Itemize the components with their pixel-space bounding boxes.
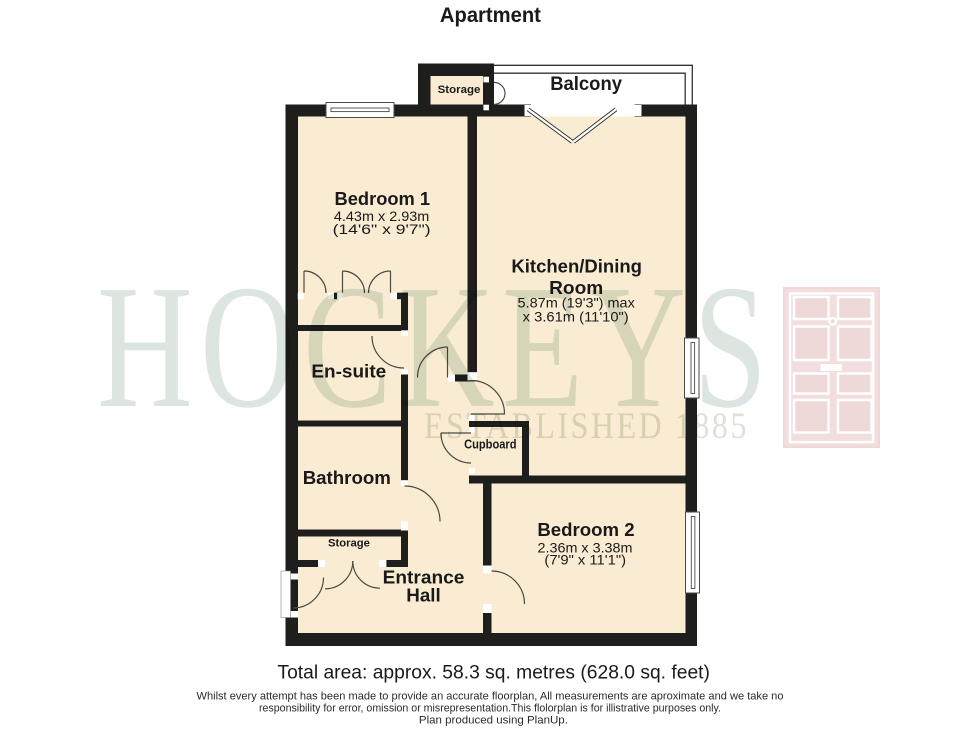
svg-text:Bedroom 1: Bedroom 1	[335, 188, 431, 209]
svg-text:Whilst every attempt has been: Whilst every attempt has been made to pr…	[197, 691, 784, 703]
svg-text:Apartment: Apartment	[440, 4, 541, 27]
svg-text:Hall: Hall	[406, 585, 440, 606]
svg-text:(14'6" x 9'7"): (14'6" x 9'7")	[333, 221, 431, 237]
svg-text:responsibility for error, omis: responsibility for error, omission or mi…	[259, 703, 721, 715]
svg-text:ESTABLISHED 1885: ESTABLISHED 1885	[424, 406, 749, 447]
svg-text:Plan produced using PlanUp.: Plan produced using PlanUp.	[419, 714, 568, 726]
svg-text:Balcony: Balcony	[550, 74, 622, 95]
svg-text:Bedroom 2: Bedroom 2	[537, 519, 634, 540]
svg-text:Total area: approx. 58.3 sq. m: Total area: approx. 58.3 sq. metres (628…	[277, 663, 710, 684]
svg-text:(7'9" x 11'1"): (7'9" x 11'1")	[544, 552, 626, 568]
svg-text:Storage: Storage	[328, 537, 370, 549]
svg-text:Storage: Storage	[438, 84, 481, 96]
svg-text:Bathroom: Bathroom	[303, 467, 391, 488]
